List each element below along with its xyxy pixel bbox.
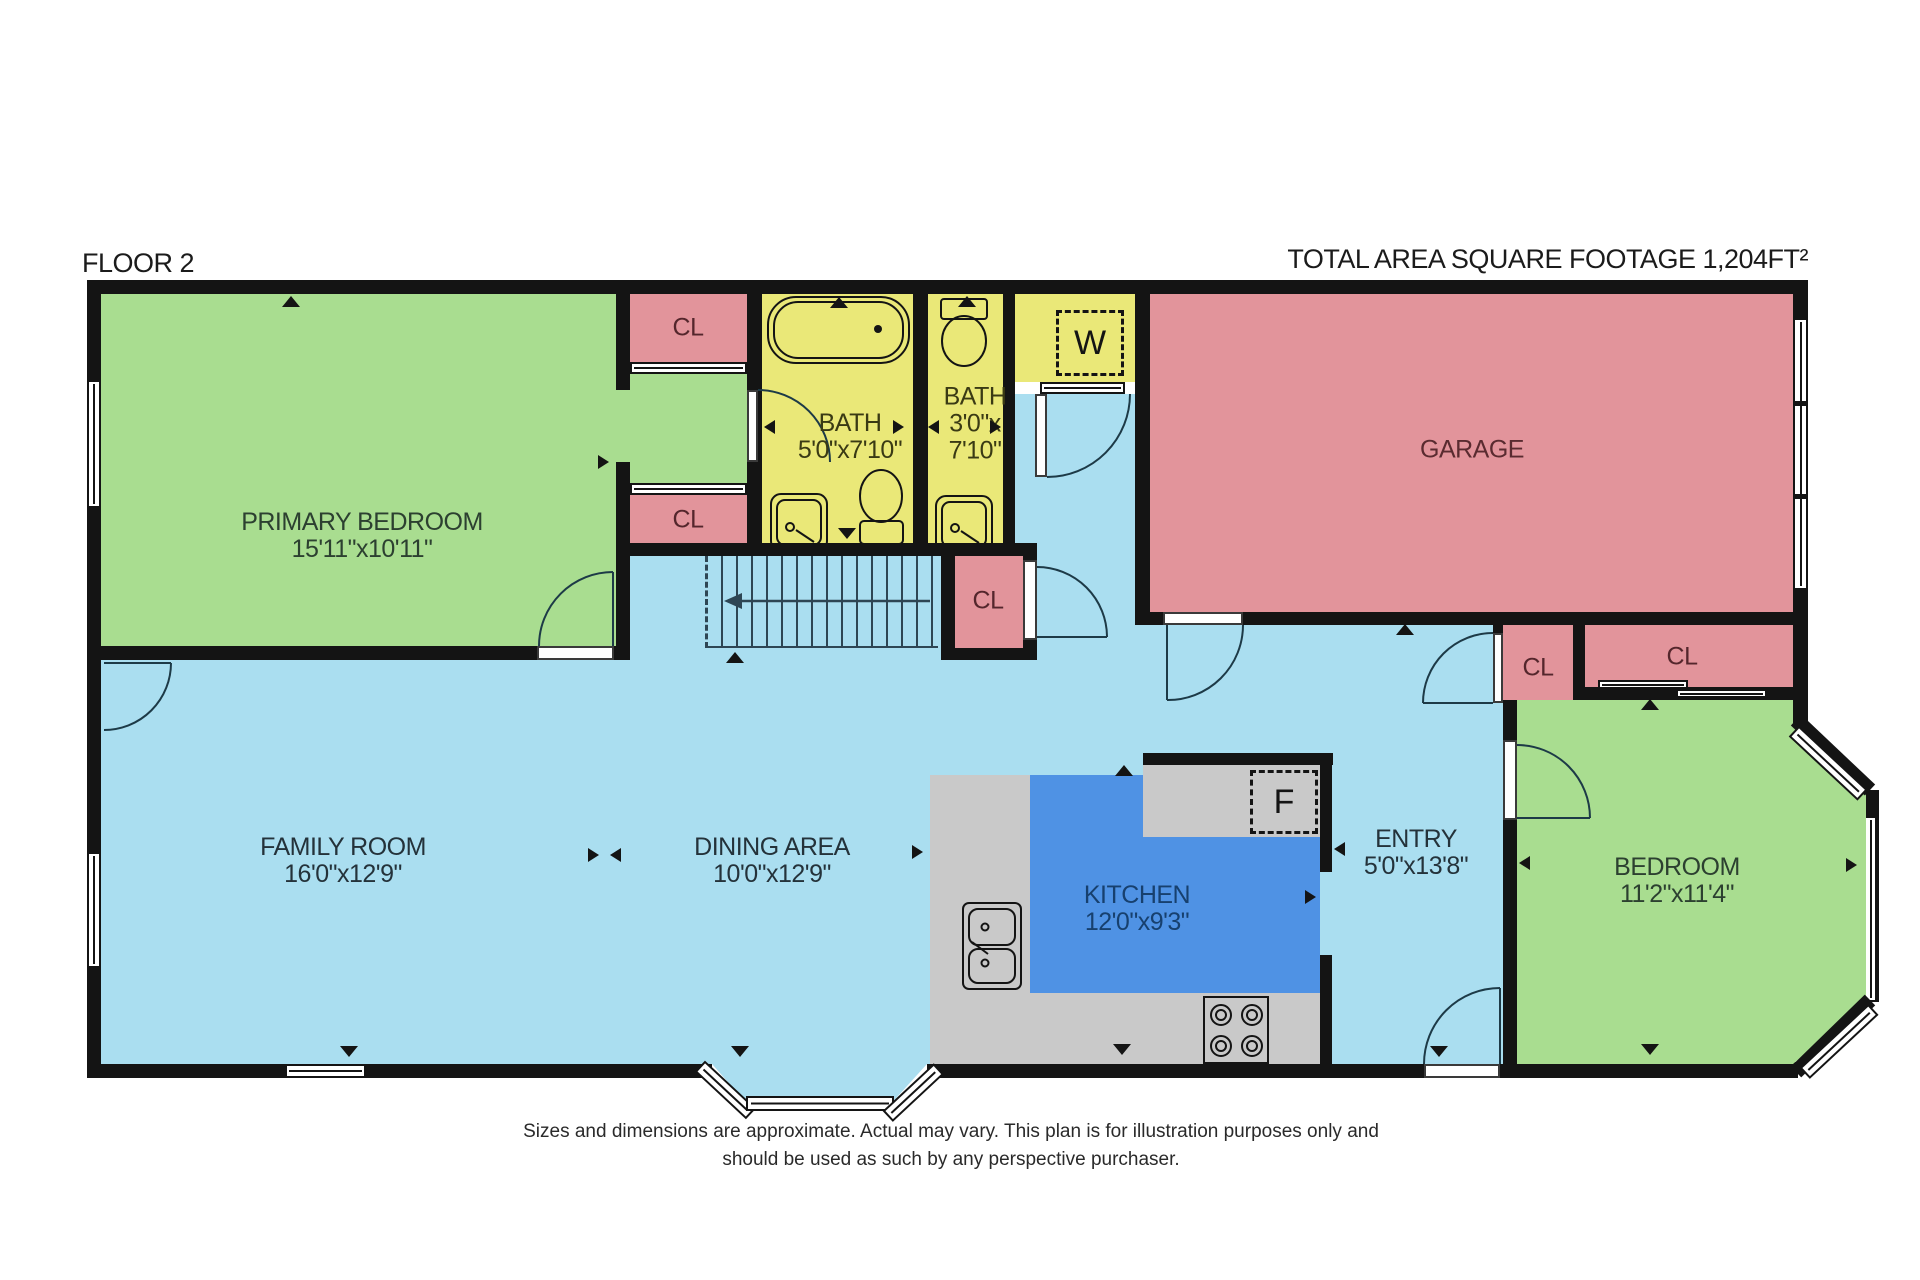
primary-bedroom-opening-fill (616, 390, 630, 462)
room-name: FAMILY ROOM (260, 834, 426, 861)
sliding-door (1040, 382, 1125, 394)
bath1-label: BATH 5'0"x7'10" (798, 410, 902, 464)
sliding-door (1598, 680, 1688, 689)
room-name: PRIMARY BEDROOM (241, 509, 483, 536)
family-room-label: FAMILY ROOM 16'0"x12'9" (260, 834, 426, 888)
corridor-fill (1135, 625, 1503, 753)
washer-box: W (1056, 310, 1124, 376)
window (285, 1064, 366, 1078)
opening-marker-down (1641, 1044, 1659, 1055)
garage-label: GARAGE (1420, 437, 1524, 464)
floor-plan: FLOOR 2 TOTAL AREA SQUARE FOOTAGE 1,204F… (0, 0, 1920, 1280)
wall (616, 462, 630, 660)
wall (87, 280, 1808, 294)
kitchen-label: KITCHEN 12'0"x9'3" (1084, 882, 1190, 936)
wall (1135, 294, 1150, 625)
room-name: DINING AREA (694, 834, 850, 861)
opening-marker-right (1305, 890, 1316, 904)
total-area-label: TOTAL AREA SQUARE FOOTAGE 1,204FT² (1287, 244, 1808, 275)
opening-marker-up (958, 296, 976, 307)
wall (941, 648, 1037, 660)
sliding-door (1676, 689, 1767, 698)
window (87, 380, 101, 508)
door-arc (1517, 745, 1590, 818)
bay-floor (712, 1064, 927, 1107)
door-jamb (1493, 633, 1503, 703)
angled-wall (1796, 720, 1870, 790)
opening-marker-left (1334, 842, 1345, 856)
fridge-box: F (1250, 770, 1318, 834)
primary-bedroom-label: PRIMARY BEDROOM 15'11"x10'11" (241, 509, 483, 563)
room-dims: 10'0"x12'9" (694, 861, 850, 888)
opening-marker-down (1113, 1044, 1131, 1055)
room-name: ENTRY (1364, 826, 1468, 853)
wall (1320, 765, 1332, 872)
floor-label: FLOOR 2 (82, 248, 194, 279)
window (1793, 318, 1808, 590)
window-divider (1793, 401, 1808, 406)
opening-marker-up (1641, 699, 1659, 710)
closet-nook-fill (630, 374, 747, 483)
opening-marker-up (830, 297, 848, 308)
door-jamb (1424, 1064, 1500, 1078)
opening-marker-up (1115, 765, 1133, 776)
room-name: BATH (944, 384, 1007, 411)
disclaimer-line1: Sizes and dimensions are approximate. Ac… (431, 1118, 1471, 1146)
door-jamb (747, 390, 758, 462)
closet-top-label: CL (673, 315, 704, 342)
room-name: BATH (798, 410, 902, 437)
room-dims: 15'11"x10'11" (241, 536, 483, 563)
room-name: BEDROOM (1614, 854, 1740, 881)
opening-marker-down (838, 528, 856, 539)
wall (941, 556, 955, 660)
wall (616, 543, 1037, 556)
wall (1573, 625, 1585, 700)
room-dims: 16'0"x12'9" (260, 861, 426, 888)
window (87, 852, 101, 968)
window-divider (1793, 494, 1808, 499)
room-name: GARAGE (1420, 437, 1524, 464)
closet-entry-label: CL (1523, 655, 1554, 682)
opening-marker-up (726, 652, 744, 663)
opening-marker-left (1519, 856, 1530, 870)
primary-bedroom-fill (101, 294, 616, 646)
sliding-door (630, 483, 747, 495)
wall (616, 294, 630, 390)
wall (1793, 625, 1808, 730)
wall (87, 646, 537, 660)
wall (1320, 955, 1332, 1064)
washer-label: W (1074, 324, 1106, 363)
opening-marker-left (610, 848, 621, 862)
room-dims: 7'10" (944, 438, 1007, 465)
opening-marker-right (893, 420, 904, 434)
opening-marker-down (731, 1046, 749, 1057)
dining-area-label: DINING AREA 10'0"x12'9" (694, 834, 850, 888)
wall (1503, 1062, 1798, 1078)
bedroom-label: BEDROOM 11'2"x11'4" (1614, 854, 1740, 908)
door-jamb (1035, 394, 1047, 477)
fridge-label: F (1274, 783, 1295, 822)
room-name: KITCHEN (1084, 882, 1190, 909)
disclaimer: Sizes and dimensions are approximate. Ac… (431, 1118, 1471, 1174)
opening-marker-up (1396, 624, 1414, 635)
wall (927, 1064, 1332, 1078)
opening-marker-right (1846, 858, 1857, 872)
angled-wall (1796, 1000, 1870, 1072)
room-dims: 5'0"x13'8" (1364, 853, 1468, 880)
room-dims: 5'0"x7'10" (798, 437, 902, 464)
wall (1143, 753, 1333, 765)
disclaimer-line2: should be used as such by any perspectiv… (431, 1146, 1471, 1174)
closet-bottom-label: CL (673, 507, 704, 534)
door-jamb (1023, 560, 1037, 640)
door-jamb (1163, 612, 1243, 625)
opening-marker-right (598, 455, 609, 469)
door-jamb (1503, 740, 1517, 820)
opening-marker-up (282, 296, 300, 307)
room-dims: 12'0"x9'3" (1084, 909, 1190, 936)
opening-marker-down (1430, 1046, 1448, 1057)
opening-marker-down (340, 1046, 358, 1057)
wall (913, 294, 928, 556)
staircase (705, 556, 938, 648)
opening-marker-right (588, 848, 599, 862)
opening-marker-right (990, 420, 1001, 434)
window (1864, 816, 1877, 1002)
opening-marker-right (912, 845, 923, 859)
entry-label: ENTRY 5'0"x13'8" (1364, 826, 1468, 880)
opening-marker-left (928, 420, 939, 434)
room-dims: 11'2"x11'4" (1614, 881, 1740, 908)
wall (87, 1064, 712, 1078)
opening-marker-left (764, 420, 775, 434)
sliding-door (630, 362, 747, 374)
closet-bedroom-label: CL (1667, 644, 1698, 671)
bay-window (696, 1062, 942, 1121)
door-jamb (537, 646, 614, 660)
closet-stairs-label: CL (973, 588, 1004, 615)
